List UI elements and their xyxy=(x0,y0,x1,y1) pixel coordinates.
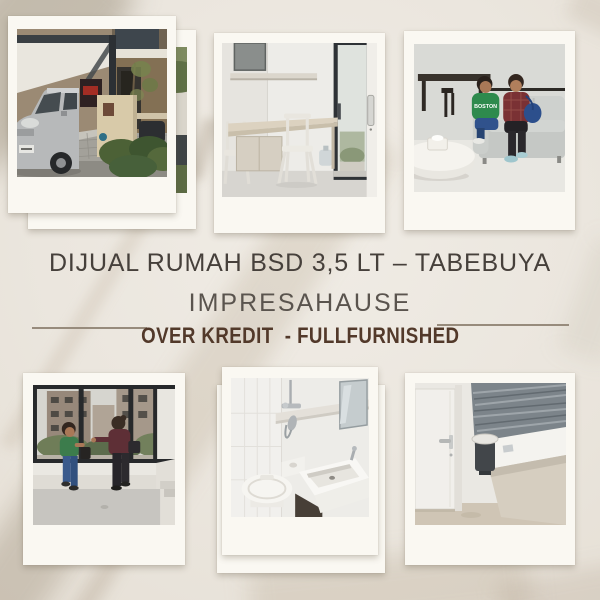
leaf-shadow xyxy=(556,235,600,365)
polaroid-workspace xyxy=(214,33,385,233)
jersey-text: BOSTON xyxy=(474,104,497,110)
polaroid-living-room: BOSTON xyxy=(404,31,575,230)
photo-workspace xyxy=(222,43,377,197)
polaroid-bathroom xyxy=(222,367,378,555)
flyer-canvas: BOSTON xyxy=(0,0,600,600)
polaroid-house-exterior xyxy=(8,16,176,213)
divider-left xyxy=(32,327,147,329)
headline-line3-text: OVER KREDIT - FULLFURNISHED xyxy=(141,323,459,349)
polaroid-window-bench xyxy=(23,373,185,565)
photo-house-exterior xyxy=(17,29,167,177)
headline-line1: DIJUAL RUMAH BSD 3,5 LT – TABEBUYA xyxy=(0,249,600,278)
photo-bedroom xyxy=(415,383,566,525)
headline-line2: IMPRESAHAUSE xyxy=(0,289,600,318)
polaroid-bedroom xyxy=(405,373,575,565)
photo-living-room: BOSTON xyxy=(414,44,565,192)
photo-bathroom xyxy=(231,378,369,517)
photo-window-bench xyxy=(33,385,175,525)
divider-right xyxy=(437,324,569,326)
